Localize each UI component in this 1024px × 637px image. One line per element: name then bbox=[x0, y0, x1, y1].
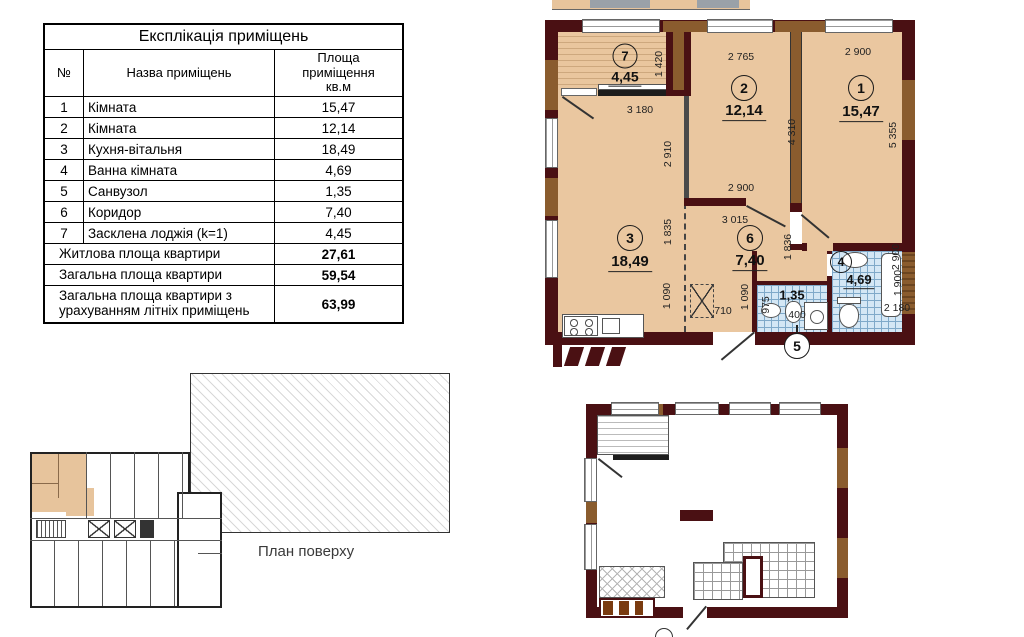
dimension-label: 1 090 bbox=[740, 284, 751, 310]
partition bbox=[110, 452, 111, 518]
partition bbox=[174, 540, 175, 606]
table-header-row: №Назва приміщеньПлоща приміщення кв.м bbox=[44, 50, 403, 97]
dimension-label: 5 355 bbox=[888, 122, 899, 148]
summary-row: Загальна площа квартири з урахуванням лі… bbox=[44, 286, 403, 324]
explication-table-body: Експлікація приміщень№Назва приміщеньПло… bbox=[44, 24, 403, 323]
lower-structure bbox=[564, 347, 584, 366]
table-cell: 3 bbox=[44, 139, 84, 160]
door-opening-room2 bbox=[746, 198, 790, 206]
table-cell: Санвузол bbox=[84, 181, 275, 202]
kitchen-sink bbox=[602, 318, 620, 334]
table-cell: 1,35 bbox=[275, 181, 404, 202]
table-cell: 15,47 bbox=[275, 97, 404, 118]
wall-segment bbox=[902, 80, 915, 140]
room-area-label: 18,49 bbox=[608, 254, 652, 272]
partition bbox=[102, 540, 103, 606]
table-row: 7Засклена лоджія (k=1)4,45 bbox=[44, 223, 403, 244]
empty-plan bbox=[583, 398, 851, 637]
table-row: 2Кімната12,14 bbox=[44, 118, 403, 139]
toilet-tank bbox=[837, 297, 861, 304]
dimension-label: 2 900 bbox=[845, 47, 871, 58]
room-number-badge: 4 bbox=[830, 251, 852, 273]
room-area-label: 7,40 bbox=[732, 253, 767, 271]
partition bbox=[150, 540, 151, 606]
summary-row: Житлова площа квартири27,61 bbox=[44, 244, 403, 265]
table-row: 3Кухня-вітальня18,49 bbox=[44, 139, 403, 160]
common-area-hatched bbox=[190, 373, 450, 533]
room-5-callout: 5 bbox=[784, 333, 810, 359]
table-cell: Кімната bbox=[84, 97, 275, 118]
wall-loggia-room2-core bbox=[673, 32, 684, 90]
apartment-plan: 5 1,35 115,47212,14318,4967,4074,4544,69… bbox=[545, 0, 917, 372]
loggia-window-bar bbox=[613, 455, 669, 460]
kitchen-unit bbox=[619, 601, 629, 615]
dimension-label: 400 bbox=[788, 310, 806, 321]
door-opening-bath bbox=[807, 243, 833, 251]
elevator bbox=[114, 520, 136, 538]
kitchen-unit bbox=[635, 601, 643, 615]
summary-row: Загальна площа квартири59,54 bbox=[44, 265, 403, 286]
highlighted-apartment bbox=[66, 488, 94, 516]
dimension-label: 2 765 bbox=[728, 52, 754, 63]
room-area-label: 15,47 bbox=[839, 104, 883, 122]
elevator bbox=[88, 520, 110, 538]
wall-room2-corridor bbox=[684, 198, 746, 206]
table-row: 6Коридор7,40 bbox=[44, 202, 403, 223]
window bbox=[707, 19, 773, 33]
room-area-label: 4,45 bbox=[608, 70, 641, 87]
building-extension bbox=[177, 492, 222, 608]
window bbox=[825, 19, 893, 33]
shaft bbox=[140, 520, 154, 538]
column-header: № bbox=[44, 50, 84, 97]
floor-plan-caption: План поверху bbox=[258, 543, 354, 560]
plan-sheet: Експлікація приміщень№Назва приміщеньПло… bbox=[0, 0, 1024, 637]
table-cell: 1 bbox=[44, 97, 84, 118]
window bbox=[545, 118, 558, 168]
table-cell: 2 bbox=[44, 118, 84, 139]
stove-burners bbox=[564, 316, 598, 336]
wall-segment bbox=[837, 448, 848, 488]
toilet bbox=[839, 304, 859, 328]
partition bbox=[198, 553, 222, 554]
dimension-label: 4 310 bbox=[787, 119, 798, 145]
dimension-label: 1 835 bbox=[663, 219, 674, 245]
window bbox=[779, 402, 821, 415]
table-cell: 4,45 bbox=[275, 223, 404, 244]
room-number-badge: 6 bbox=[737, 225, 763, 251]
summary-cell: Загальна площа квартири bbox=[44, 265, 275, 286]
summary-cell: 27,61 bbox=[275, 244, 404, 265]
lower-structure bbox=[553, 345, 562, 367]
summary-cell: Житлова площа квартири bbox=[44, 244, 275, 265]
lower-structure bbox=[585, 347, 605, 366]
dimension-label: 2 910 bbox=[663, 141, 674, 167]
window bbox=[545, 220, 558, 278]
table-cell: 12,14 bbox=[275, 118, 404, 139]
table-cell: 6 bbox=[44, 202, 84, 223]
table-cell: 7 bbox=[44, 223, 84, 244]
table-row: 1Кімната15,47 bbox=[44, 97, 403, 118]
washing-machine-door bbox=[810, 310, 824, 324]
window bbox=[611, 402, 659, 415]
callout-circle-clipped bbox=[655, 628, 673, 637]
room-number-badge: 3 bbox=[617, 225, 643, 251]
loggia-deck bbox=[597, 415, 669, 455]
loggia-window-bar bbox=[598, 90, 668, 96]
table-title: Експлікація приміщень bbox=[44, 24, 403, 50]
table-cell: 7,40 bbox=[275, 202, 404, 223]
dimension-label: 1 420 bbox=[654, 51, 665, 77]
table-cell: Засклена лоджія (k=1) bbox=[84, 223, 275, 244]
table-cell: 18,49 bbox=[275, 139, 404, 160]
room-area-label: 4,69 bbox=[843, 273, 874, 289]
table-cell: 5 bbox=[44, 181, 84, 202]
room-area-label: 12,14 bbox=[722, 103, 766, 121]
partition bbox=[158, 452, 159, 518]
table-row: 4Ванна кімната4,69 bbox=[44, 160, 403, 181]
balcony-door bbox=[561, 88, 597, 96]
apartment-inner-wall bbox=[32, 483, 58, 484]
dimension-label: 1 090 bbox=[662, 283, 673, 309]
corridor-wall bbox=[30, 518, 222, 519]
wall-segment bbox=[545, 178, 558, 216]
shaft-box bbox=[743, 556, 763, 598]
partition bbox=[78, 540, 79, 606]
table-cell: Кімната bbox=[84, 118, 275, 139]
dimension-label: 1 900 bbox=[893, 270, 904, 296]
partition bbox=[54, 540, 55, 606]
wall-room2-room1 bbox=[790, 32, 802, 203]
column-header: Площа приміщення кв.м bbox=[275, 50, 404, 97]
partition bbox=[86, 452, 87, 518]
kitchen-counter-zone bbox=[599, 566, 665, 598]
table-cell: Коридор bbox=[84, 202, 275, 223]
floor-plan: План поверху bbox=[28, 363, 462, 619]
open-plan-dashed-line bbox=[684, 203, 686, 332]
table-title-row: Експлікація приміщень bbox=[44, 24, 403, 50]
wall-room3-room2 bbox=[684, 96, 689, 203]
partition bbox=[134, 452, 135, 518]
dimension-label: 2 900 bbox=[891, 244, 902, 270]
window bbox=[584, 524, 597, 570]
vent-shaft bbox=[690, 284, 714, 318]
explication-table: Експлікація приміщень№Назва приміщеньПло… bbox=[43, 23, 404, 324]
summary-cell: 59,54 bbox=[275, 265, 404, 286]
window bbox=[584, 458, 597, 502]
room-number-badge: 1 bbox=[848, 75, 874, 101]
table-cell: 4,69 bbox=[275, 160, 404, 181]
table-cell: Кухня-вітальня bbox=[84, 139, 275, 160]
dimension-label: 975 bbox=[761, 296, 772, 314]
wall-segment bbox=[775, 21, 825, 32]
dimension-label: 2 900 bbox=[728, 183, 754, 194]
table-row: 5Санвузол1,35 bbox=[44, 181, 403, 202]
window bbox=[729, 402, 771, 415]
room-number-badge: 2 bbox=[731, 75, 757, 101]
window bbox=[675, 402, 719, 415]
room-5-area-label: 1,35 bbox=[776, 289, 807, 304]
wall-segment bbox=[663, 21, 707, 32]
kitchen-unit bbox=[603, 601, 613, 615]
wall-segment bbox=[545, 60, 558, 110]
wall-stub bbox=[680, 510, 713, 521]
summary-cell: 63,99 bbox=[275, 286, 404, 324]
table-cell: Ванна кімната bbox=[84, 160, 275, 181]
wall-segment bbox=[837, 538, 848, 578]
apartment-inner-wall bbox=[58, 454, 59, 498]
stairs bbox=[36, 520, 66, 538]
dimension-label: 1 836 bbox=[783, 234, 794, 260]
summary-cell: Загальна площа квартири з урахуванням лі… bbox=[44, 286, 275, 324]
dimension-label: 3 180 bbox=[627, 105, 653, 116]
partition bbox=[182, 452, 183, 518]
table-cell: 4 bbox=[44, 160, 84, 181]
tiled-zone bbox=[693, 562, 743, 600]
dimension-label: 710 bbox=[714, 306, 732, 317]
partition bbox=[126, 540, 127, 606]
dimension-label: 3 015 bbox=[722, 215, 748, 226]
room-number-badge: 7 bbox=[613, 44, 638, 69]
entrance-opening bbox=[713, 332, 755, 345]
neighbour-window bbox=[590, 0, 650, 8]
lower-structure bbox=[606, 347, 626, 366]
dimension-label: 2 180 bbox=[884, 303, 910, 314]
column-header: Назва приміщень bbox=[84, 50, 275, 97]
neighbour-window bbox=[697, 0, 739, 8]
window bbox=[582, 19, 660, 33]
